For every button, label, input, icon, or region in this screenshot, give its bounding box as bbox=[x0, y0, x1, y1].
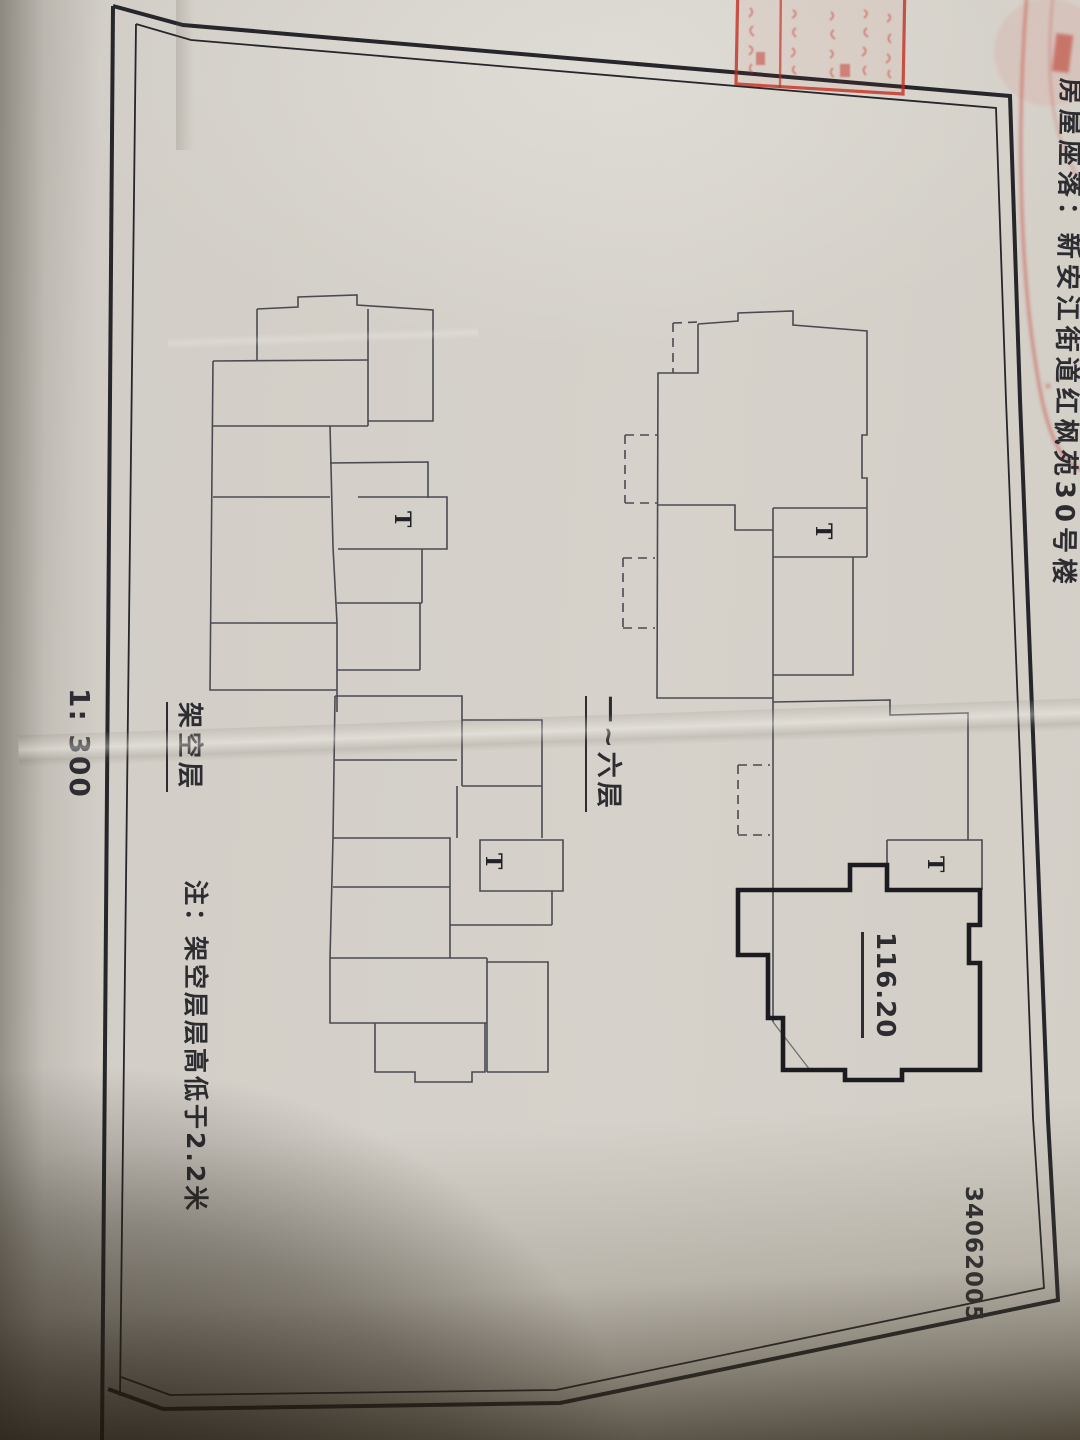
elevator-mark-lower-right: T bbox=[922, 856, 947, 872]
area-value: 116.20 bbox=[861, 932, 899, 1038]
bold-unit-outline bbox=[738, 865, 980, 1080]
paper-crease-vertical bbox=[176, 0, 200, 150]
document-number: 34062005 bbox=[960, 1186, 986, 1322]
stamp-top-center bbox=[736, 0, 905, 94]
plan-upper-right-outline bbox=[623, 311, 867, 1022]
photo-of-floor-plan-document: 房屋座落：新安江街道红枫苑30号楼 1: 300 架空层 一~六层 注：架空层层… bbox=[0, 0, 1080, 1440]
elevator-mark-upper-left: T bbox=[389, 511, 414, 527]
plan-upper-left-outline bbox=[210, 295, 447, 712]
plan-lower-right-outline bbox=[738, 700, 982, 1080]
elevator-mark-upper-right: T bbox=[810, 523, 835, 539]
floors-1-6-label: 一~六层 bbox=[585, 696, 622, 812]
elevator-mark-lower-left: T bbox=[480, 853, 505, 869]
note-text: 注：架空层层高低于2.2米 bbox=[180, 880, 209, 1213]
